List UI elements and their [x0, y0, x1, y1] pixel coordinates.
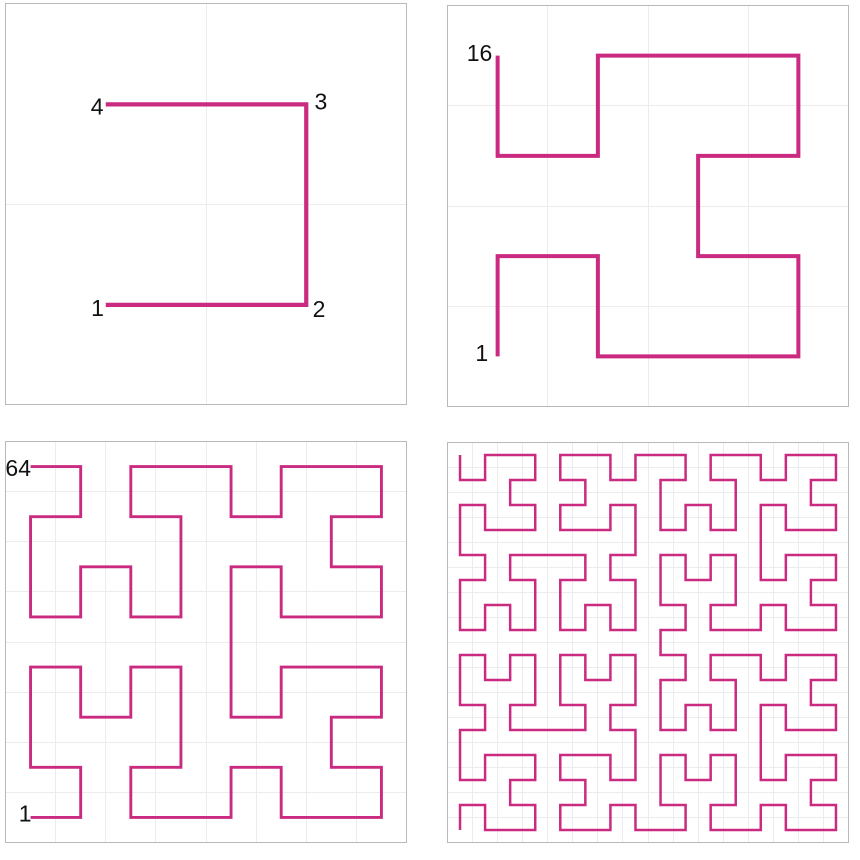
svg-text:3: 3 [315, 88, 328, 114]
svg-text:2: 2 [313, 296, 326, 322]
svg-text:1: 1 [91, 295, 104, 321]
svg-text:1: 1 [19, 801, 32, 827]
svg-text:1: 1 [475, 340, 488, 366]
svg-text:4: 4 [91, 93, 104, 119]
svg-text:64: 64 [5, 455, 31, 481]
svg-text:16: 16 [467, 40, 493, 66]
